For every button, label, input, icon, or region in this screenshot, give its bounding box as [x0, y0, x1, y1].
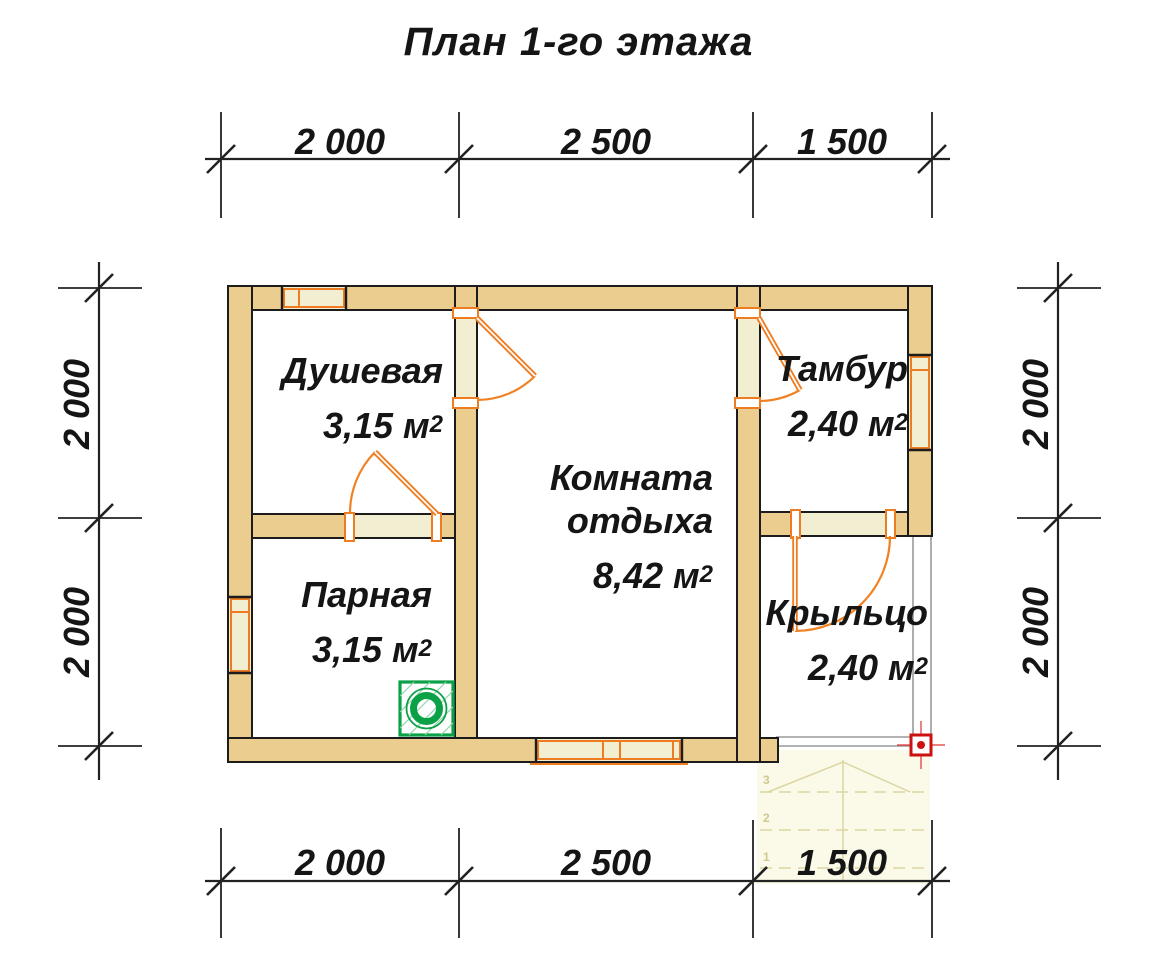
room-name: Тамбур	[776, 348, 908, 389]
door-arc	[350, 452, 375, 514]
room-area: 2,40 м2	[765, 647, 928, 688]
left-wall	[228, 286, 252, 762]
room-label-steam: Парная 3,15 м2	[301, 574, 432, 670]
door-shower-steam	[350, 452, 437, 514]
dim-right-2: 2 000	[1015, 522, 1055, 742]
room-name: Комната	[550, 456, 713, 499]
room-label-tambour: Тамбур 2,40 м2	[776, 348, 908, 444]
dim-bottom-1: 2 000	[230, 842, 450, 884]
dim-top-2: 2 500	[496, 121, 716, 163]
room-label-porch: Крыльцо 2,40 м2	[765, 592, 928, 688]
room-name: Душевая	[282, 350, 443, 391]
room-area: 8,42 м2	[550, 554, 713, 597]
floor-plan-page: 3 2 1	[0, 0, 1157, 980]
window-top	[282, 286, 346, 310]
opening-tambour-porch	[791, 510, 895, 538]
dim-left-1: 2 000	[56, 294, 96, 514]
door-arc	[477, 376, 535, 400]
room-label-shower: Душевая 3,15 м2	[282, 350, 443, 446]
room-name: Парная	[301, 574, 432, 615]
stove-icon	[400, 682, 453, 735]
dim-bottom-2: 2 500	[496, 842, 716, 884]
room-area: 3,15 м2	[282, 405, 443, 446]
page-title: План 1-го этажа	[0, 20, 1157, 65]
room-area: 3,15 м2	[301, 629, 432, 670]
opening-shower-lounge	[453, 308, 478, 408]
room-area: 2,40 м2	[776, 403, 908, 444]
window-left	[228, 597, 252, 673]
room-name: отдыха	[550, 499, 713, 542]
dim-bottom-3: 1 500	[732, 842, 952, 884]
bottom-wall	[228, 738, 778, 762]
window-right	[908, 355, 932, 450]
room-name: Крыльцо	[765, 592, 928, 633]
step-number: 2	[763, 811, 770, 825]
opening-lounge-tambour	[735, 308, 760, 408]
door-shower-lounge	[477, 318, 535, 400]
dim-right-1: 2 000	[1015, 294, 1055, 514]
step-number: 3	[763, 773, 770, 787]
dim-left-2: 2 000	[56, 522, 96, 742]
window-bottom	[530, 738, 688, 764]
dim-top-3: 1 500	[732, 121, 952, 163]
opening-shower-steam	[345, 513, 441, 541]
room-label-lounge: Комната отдыха 8,42 м2	[550, 456, 713, 597]
dim-top-1: 2 000	[230, 121, 450, 163]
